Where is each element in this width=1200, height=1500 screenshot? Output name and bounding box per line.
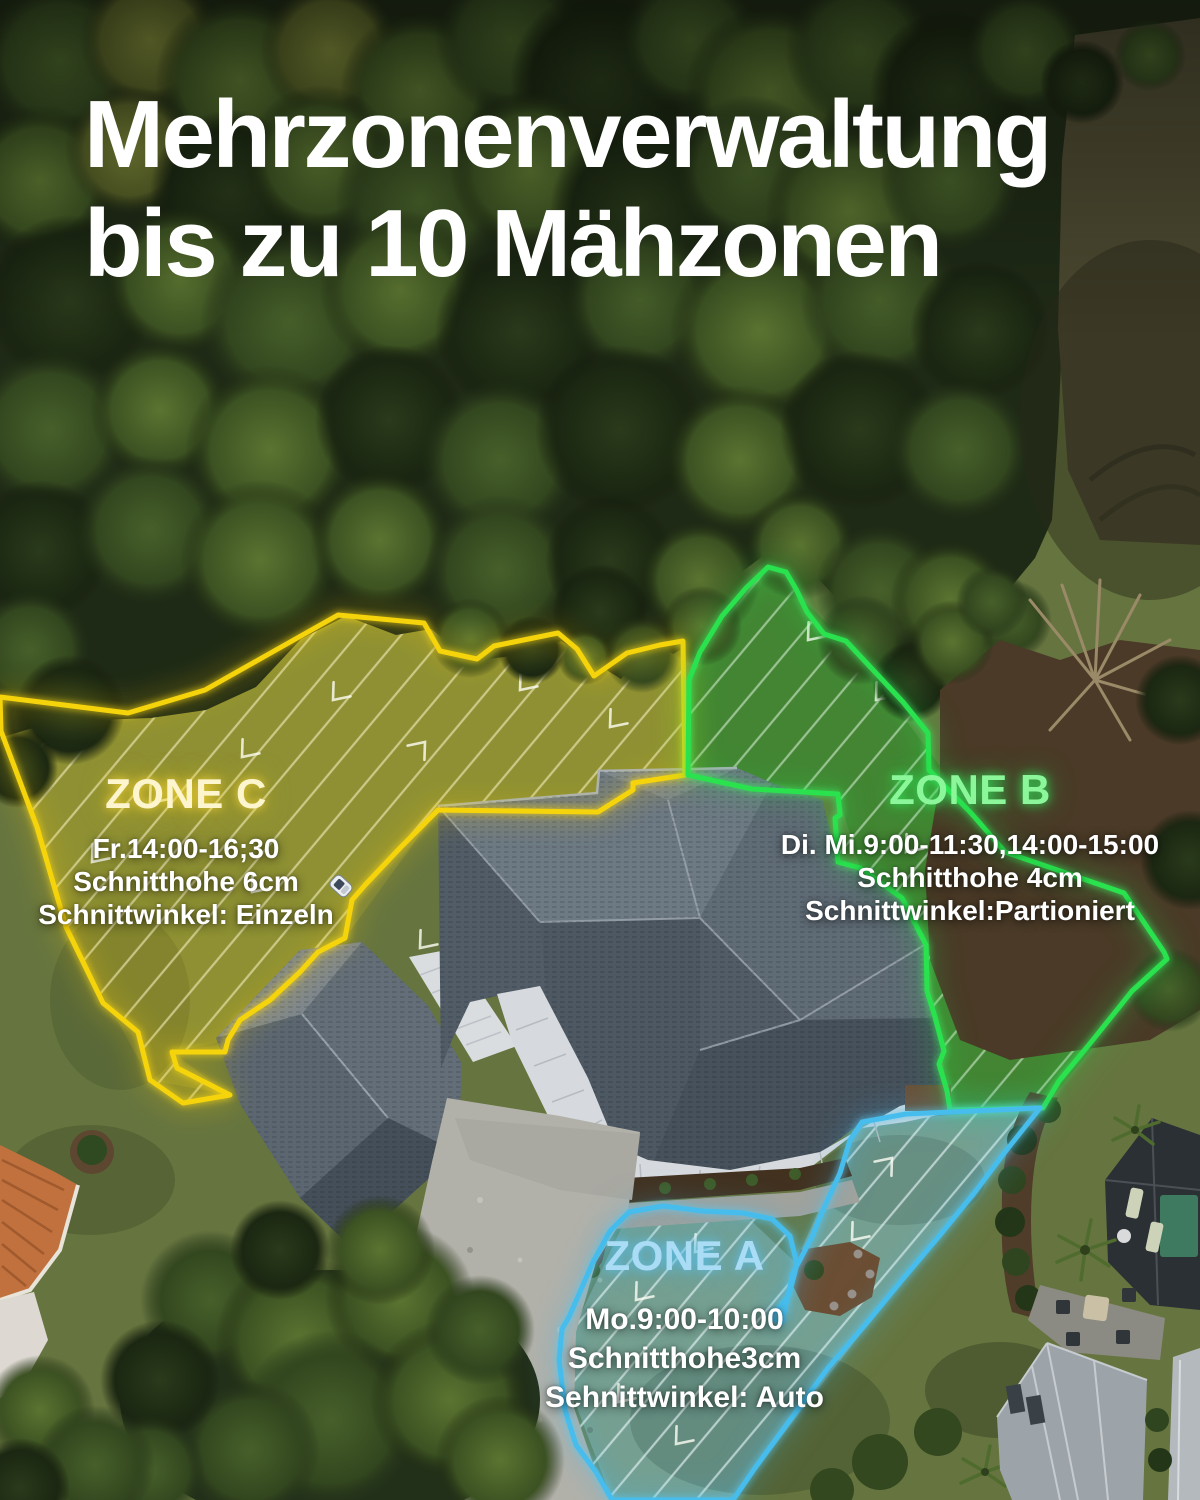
zone-b-label: ZONE B Di. Mi.9:00-11:30,14:00-15:00 Sch… <box>715 766 1200 927</box>
headline-line-1: Mehrzonenverwaltung <box>84 80 1050 189</box>
zone-a-cut-height: Schnitthohe3cm <box>512 1339 857 1378</box>
zone-b-schedule: Di. Mi.9:00-11:30,14:00-15:00 <box>715 828 1200 861</box>
zone-c-schedule: Fr.14:00-16;30 <box>0 832 372 865</box>
pool <box>1160 1195 1198 1257</box>
headline-line-2: bis zu 10 Mähzonen <box>84 189 1050 298</box>
poster: Mehrzonenverwaltung bis zu 10 Mähzonen Z… <box>0 0 1200 1500</box>
zone-a-cut-angle: Sehnittwinkel: Auto <box>512 1378 857 1417</box>
fire-table <box>1082 1294 1109 1321</box>
zone-b-cut-height: Schhitthohe 4cm <box>715 861 1200 894</box>
zone-c-cut-height: Schnitthohe 6cm <box>0 865 372 898</box>
zone-a-title: ZONE A <box>512 1232 857 1280</box>
zone-a-label: ZONE A Mo.9:00-10:00 Schnitthohe3cm Sehn… <box>512 1232 857 1417</box>
headline: Mehrzonenverwaltung bis zu 10 Mähzonen <box>84 80 1050 299</box>
zone-b-cut-angle: Schnittwinkel:Partioniert <box>715 894 1200 927</box>
zone-c-title: ZONE C <box>0 770 372 818</box>
zone-c-label: ZONE C Fr.14:00-16;30 Schnitthohe 6cm Sc… <box>0 770 372 931</box>
zone-a-schedule: Mo.9:00-10:00 <box>512 1300 857 1339</box>
zone-c-cut-angle: Schnittwinkel: Einzeln <box>0 898 372 931</box>
zone-b-title: ZONE B <box>715 766 1200 814</box>
